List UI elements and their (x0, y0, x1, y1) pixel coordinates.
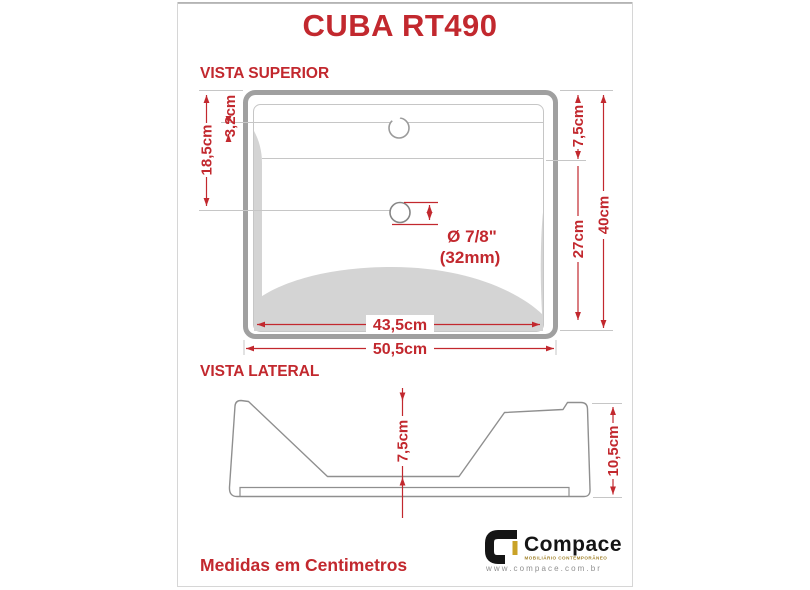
svg-text:7,5cm: 7,5cm (570, 105, 587, 148)
side-view-label: VISTA LATERAL (200, 363, 319, 380)
svg-text:7,5cm: 7,5cm (395, 420, 412, 463)
svg-text:50,5cm: 50,5cm (373, 341, 427, 358)
svg-text:40cm: 40cm (596, 196, 613, 234)
svg-text:43,5cm: 43,5cm (373, 317, 427, 334)
svg-text:27cm: 27cm (570, 220, 587, 258)
svg-text:(32mm): (32mm) (440, 248, 500, 267)
brand-tagline: MOBILIÁRIO CONTEMPORÂNEO (525, 555, 608, 561)
top-view-label: VISTA SUPERIOR (200, 65, 329, 82)
product-dimension-diagram: CUBA RT490 VISTA SUPERIOR 18,5cm (0, 0, 810, 590)
svg-text:3,2cm: 3,2cm (222, 95, 239, 138)
compace-logo-gold-bar (513, 541, 518, 555)
top-view: VISTA SUPERIOR 18,5cm 3,2c (198, 65, 614, 358)
units-note: Medidas em Centimetros (200, 555, 407, 575)
page-title: CUBA RT490 (302, 8, 497, 43)
brand-website: www.compace.com.br (485, 564, 602, 573)
svg-text:Ø 7/8": Ø 7/8" (447, 227, 497, 246)
drain-hole (390, 203, 410, 223)
svg-text:18,5cm: 18,5cm (199, 125, 216, 176)
brand-name: Compace (524, 533, 622, 556)
svg-text:10,5cm: 10,5cm (605, 426, 622, 477)
product-dimension-sheet: CUBA RT490 VISTA SUPERIOR 18,5cm (0, 0, 810, 590)
